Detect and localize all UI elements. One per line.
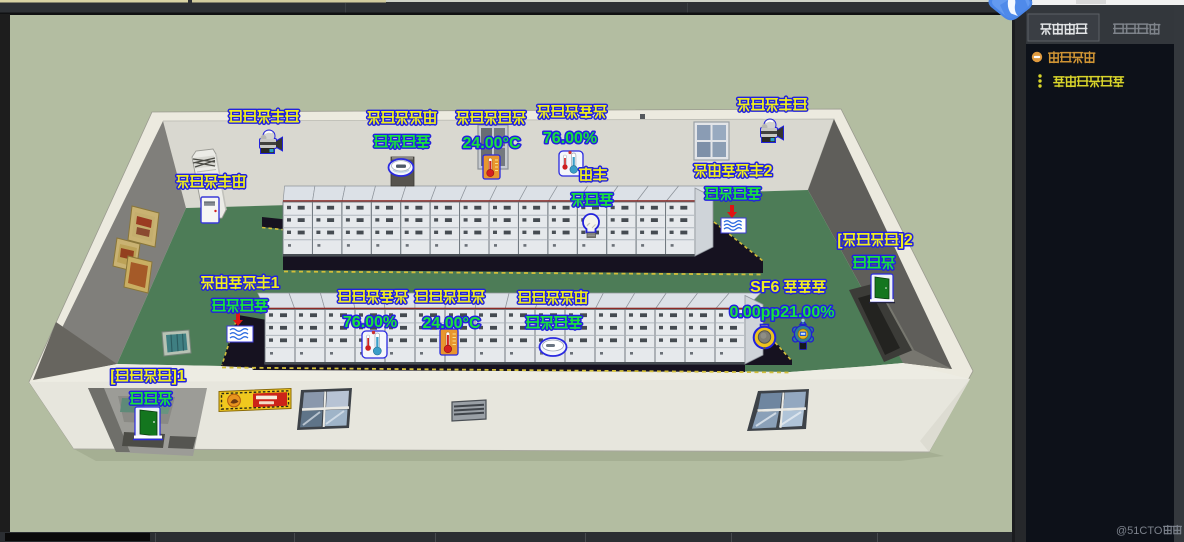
svg-text:SF6: SF6 bbox=[750, 279, 779, 296]
svg-text:]1: ]1 bbox=[172, 368, 186, 385]
svg-text:76.00%: 76.00% bbox=[543, 130, 597, 147]
svg-text:0.00pp21.00%: 0.00pp21.00% bbox=[730, 304, 835, 321]
svg-text:24.00°C: 24.00°C bbox=[423, 315, 481, 332]
svg-text:1: 1 bbox=[271, 275, 280, 292]
svg-text:@51CTO: @51CTO bbox=[1116, 525, 1163, 537]
svg-text:]2: ]2 bbox=[899, 232, 913, 249]
svg-text:24.00°C: 24.00°C bbox=[463, 135, 521, 152]
svg-text:76.00%: 76.00% bbox=[343, 314, 397, 331]
svg-text:2: 2 bbox=[764, 163, 773, 180]
